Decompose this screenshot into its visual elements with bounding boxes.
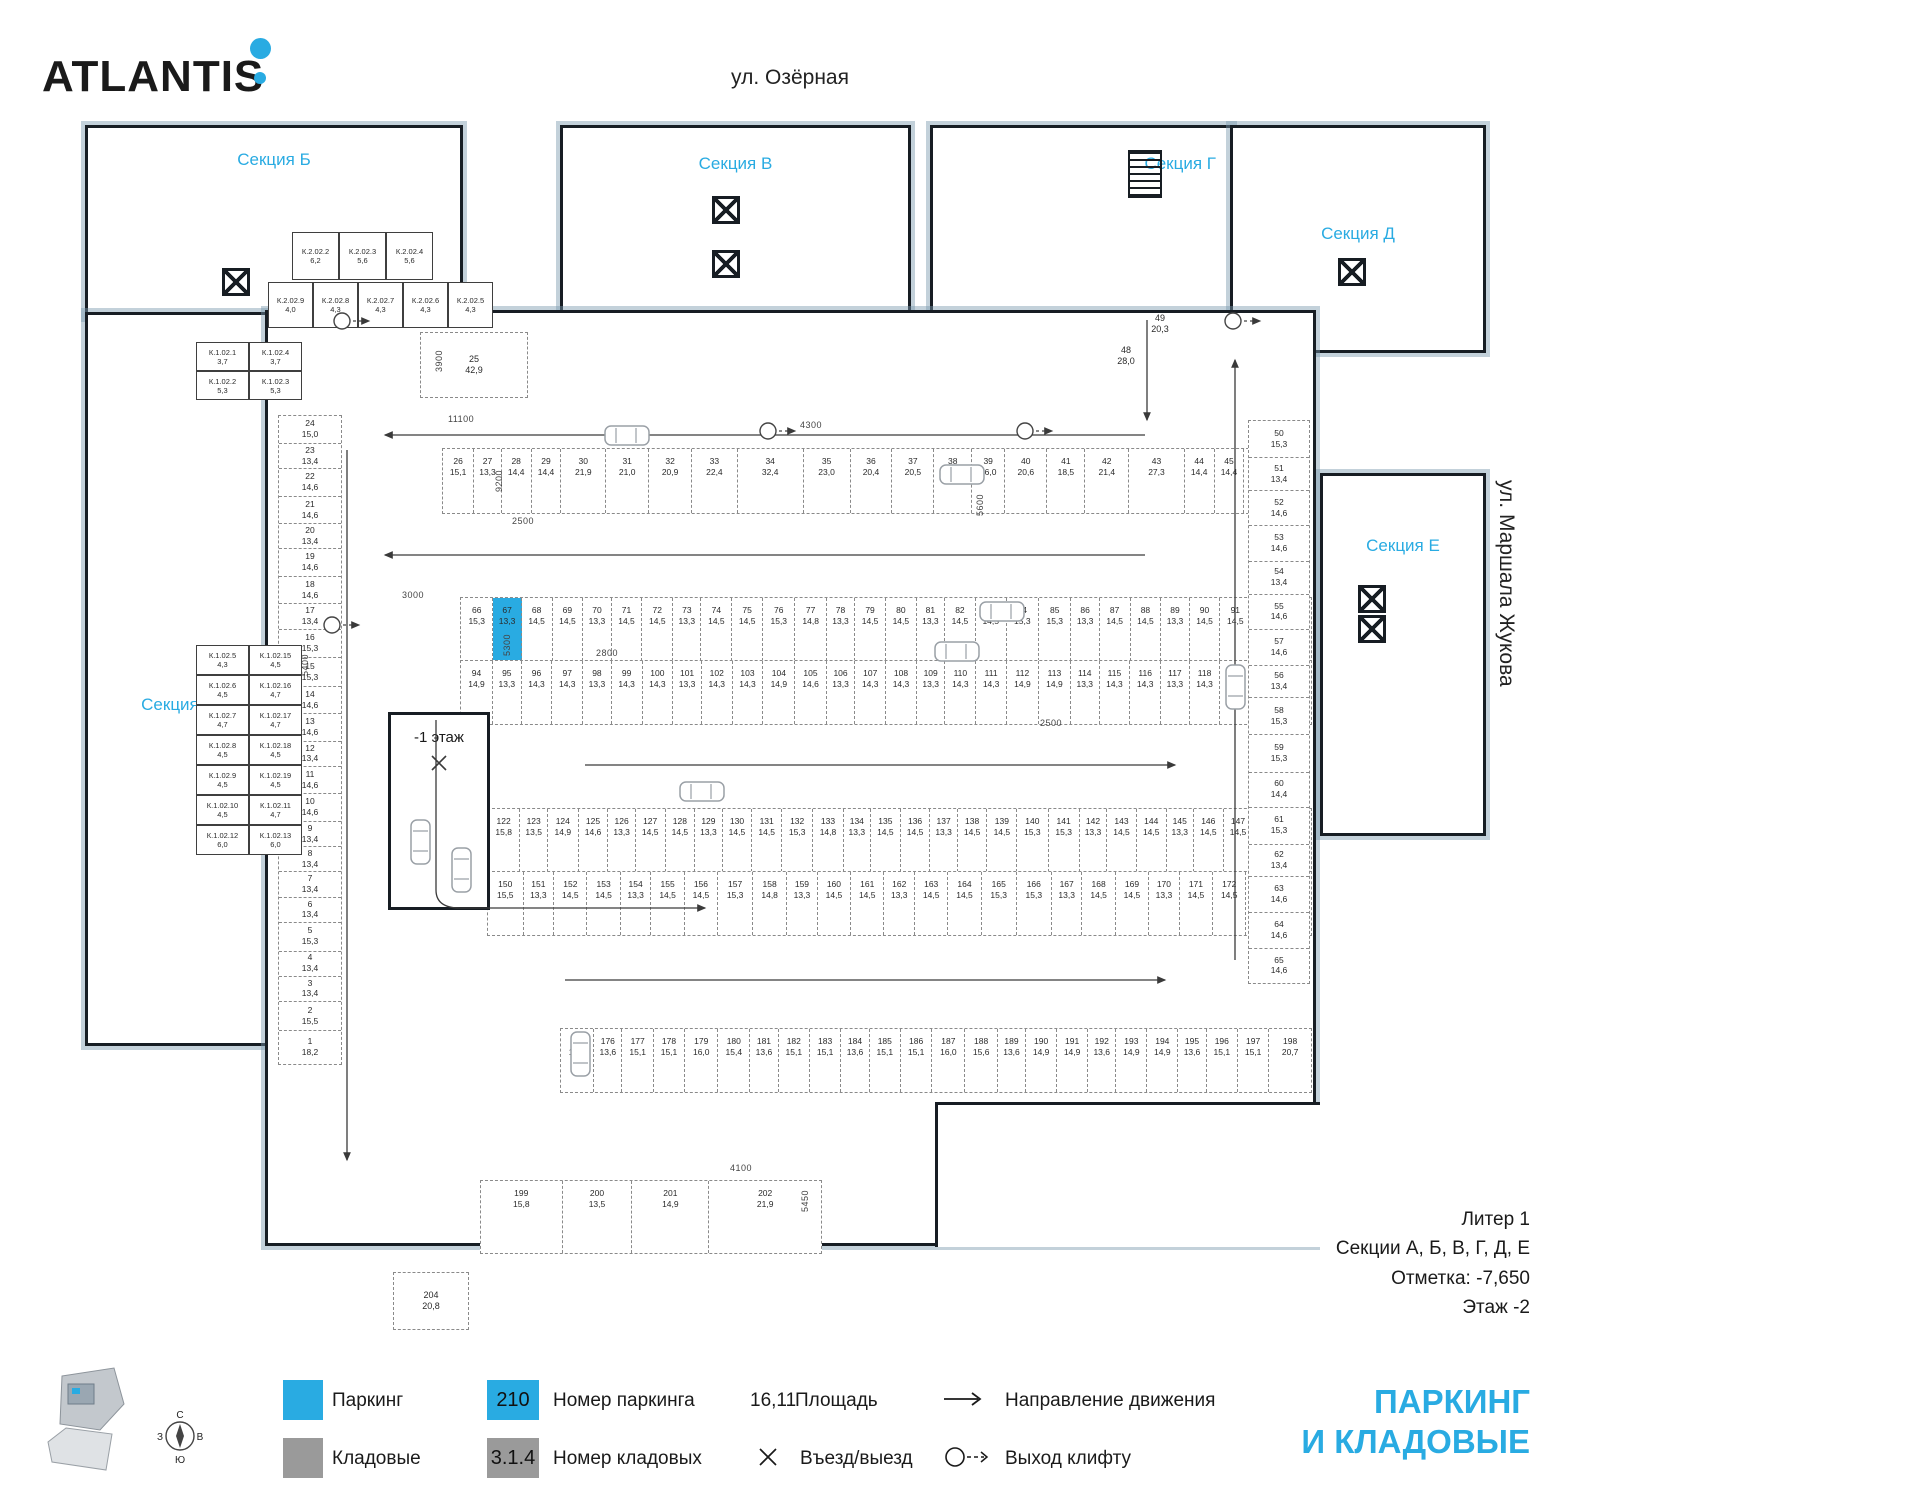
storage-unit-К.1.02.15: К.1.02.154,5 bbox=[249, 645, 302, 675]
parking-spot-195: 19513,6 bbox=[1178, 1029, 1206, 1092]
parking-spot-198: 19820,7 bbox=[1269, 1029, 1311, 1092]
parking-spot-116: 11614,3 bbox=[1130, 661, 1161, 724]
storage-unit-К.1.02.1: К.1.02.13,7 bbox=[196, 342, 249, 371]
parking-row-26-47: 2615,12713,32814,42914,43021,93121,03220… bbox=[442, 448, 1304, 514]
storage-unit-К.1.02.10: К.1.02.104,5 bbox=[196, 795, 249, 825]
parking-spot-125: 12514,6 bbox=[579, 809, 609, 872]
parking-spot-138: 13814,5 bbox=[958, 809, 988, 872]
section-b-label: Секция Б bbox=[88, 150, 460, 170]
parking-spot-129: 12913,3 bbox=[695, 809, 722, 872]
stairs-icon bbox=[1128, 150, 1162, 198]
parking-spot-91: 9114,5 bbox=[1220, 598, 1251, 661]
parking-spot-72: 7214,5 bbox=[642, 598, 673, 661]
parking-spot-97: 9714,3 bbox=[552, 661, 583, 724]
parking-spot-90: 9014,5 bbox=[1190, 598, 1221, 661]
legend-direction-label: Направление движения bbox=[1005, 1390, 1215, 1412]
parking-spot-6: 613,4 bbox=[279, 898, 341, 923]
elevator-icon bbox=[1338, 258, 1366, 286]
legend-parking-swatch bbox=[283, 1380, 323, 1420]
parking-spot-49: 4920,3 bbox=[1130, 313, 1190, 336]
parking-spot-126: 12613,3 bbox=[608, 809, 635, 872]
parking-spot-66: 6615,3 bbox=[461, 598, 493, 661]
storage-group-left-mid: К.1.02.54,3К.1.02.154,5К.1.02.64,5К.1.02… bbox=[196, 645, 302, 855]
parking-spot-80: 8014,5 bbox=[886, 598, 917, 661]
entry-exit-icon bbox=[430, 754, 448, 772]
parking-spot-60: 6014,4 bbox=[1249, 773, 1309, 808]
parking-spot-186: 18615,1 bbox=[901, 1029, 932, 1092]
hall-corner-step bbox=[935, 1102, 1320, 1247]
storage-unit-К.1.02.17: К.1.02.174,7 bbox=[249, 705, 302, 735]
title-floor: Этаж -2 bbox=[1150, 1293, 1530, 1322]
parking-spot-69: 6914,5 bbox=[553, 598, 584, 661]
parking-spot-45: 4514,4 bbox=[1215, 449, 1245, 513]
parking-spot-132: 13215,3 bbox=[782, 809, 813, 872]
parking-spot-89: 8913,3 bbox=[1161, 598, 1189, 661]
parking-spot-146: 14614,5 bbox=[1194, 809, 1224, 872]
storage-unit-К.1.02.2: К.1.02.25,3 bbox=[196, 371, 249, 400]
parking-spot-153: 15314,5 bbox=[587, 872, 620, 935]
parking-spot-113: 11314,9 bbox=[1039, 661, 1071, 724]
parking-spot-79: 7914,5 bbox=[855, 598, 886, 661]
section-g-label: Секция Г bbox=[933, 154, 1230, 174]
parking-spot-32: 3220,9 bbox=[649, 449, 692, 513]
parking-spot-106: 10613,3 bbox=[827, 661, 856, 724]
parking-spot-54: 5413,4 bbox=[1249, 562, 1309, 595]
street-label-ozernaya: ул. Озёрная bbox=[600, 66, 980, 90]
parking-spot-127: 12714,5 bbox=[636, 809, 666, 872]
parking-spot-166: 16615,3 bbox=[1017, 872, 1052, 935]
elevator-icon bbox=[1358, 615, 1386, 643]
parking-spot-140: 14015,3 bbox=[1017, 809, 1048, 872]
parking-column-50-65: 5015,35113,45214,65314,65413,45514,65714… bbox=[1248, 420, 1310, 984]
parking-spot-48: 4828,0 bbox=[1096, 345, 1156, 368]
parking-spot-161: 16114,5 bbox=[851, 872, 884, 935]
parking-row-175-198: 17516,017613,617715,117815,117916,018015… bbox=[560, 1028, 1312, 1093]
legend-area-value: 16,11 bbox=[750, 1390, 796, 1412]
compass-icon: С Ю В З bbox=[157, 1410, 204, 1466]
parking-spot-20: 2013,4 bbox=[279, 524, 341, 549]
parking-spot-82: 8214,5 bbox=[945, 598, 976, 661]
storage-group-left-top: К.1.02.13,7К.1.02.43,7К.1.02.25,3К.1.02.… bbox=[196, 342, 302, 400]
parking-row-199-202: 19915,820013,520114,920221,9 bbox=[480, 1180, 822, 1254]
parking-spot-40: 4020,6 bbox=[1005, 449, 1047, 513]
parking-row-66-93: 6615,36713,36814,56914,57013,37114,57214… bbox=[460, 597, 1312, 663]
parking-spot-95: 9513,3 bbox=[493, 661, 522, 724]
parking-spot-52: 5214,6 bbox=[1249, 491, 1309, 527]
parking-spot-204: 20420,8 bbox=[393, 1272, 469, 1330]
parking-spot-43: 4327,3 bbox=[1129, 449, 1185, 513]
parking-spot-38: 3818,4 bbox=[934, 449, 972, 513]
parking-spot-65: 6514,6 bbox=[1249, 949, 1309, 984]
parking-spot-188: 18815,6 bbox=[965, 1029, 997, 1092]
parking-spot-176: 17613,6 bbox=[594, 1029, 622, 1092]
parking-spot-56: 5613,4 bbox=[1249, 666, 1309, 699]
parking-spot-136: 13614,5 bbox=[901, 809, 931, 872]
parking-spot-157: 15715,3 bbox=[718, 872, 753, 935]
parking-spot-100: 10014,3 bbox=[643, 661, 674, 724]
parking-spot-159: 15913,3 bbox=[787, 872, 818, 935]
parking-spot-73: 7313,3 bbox=[673, 598, 701, 661]
parking-spot-169: 16914,5 bbox=[1116, 872, 1149, 935]
elevator-icon bbox=[1358, 585, 1386, 613]
parking-spot-7: 713,4 bbox=[279, 872, 341, 897]
parking-spot-101: 10113,3 bbox=[673, 661, 702, 724]
parking-spot-152: 15214,5 bbox=[554, 872, 587, 935]
parking-spot-158: 15814,8 bbox=[753, 872, 787, 935]
parking-spot-81: 8113,3 bbox=[917, 598, 945, 661]
parking-spot-22: 2214,6 bbox=[279, 469, 341, 496]
parking-spot-163: 16314,5 bbox=[915, 872, 948, 935]
parking-spot-187: 18716,0 bbox=[932, 1029, 965, 1092]
parking-spot-83: 8314,5 bbox=[976, 598, 1007, 661]
parking-spot-197: 19715,1 bbox=[1238, 1029, 1269, 1092]
parking-spot-88: 8814,5 bbox=[1131, 598, 1162, 661]
storage-unit-К.1.02.3: К.1.02.35,3 bbox=[249, 371, 302, 400]
parking-spot-164: 16414,5 bbox=[948, 872, 981, 935]
dimension-label: 11100 bbox=[448, 414, 474, 424]
parking-spot-131: 13114,5 bbox=[752, 809, 782, 872]
parking-spot-182: 18215,1 bbox=[779, 1029, 810, 1092]
parking-spot-178: 17815,1 bbox=[654, 1029, 685, 1092]
elevator-icon bbox=[712, 196, 740, 224]
parking-spot-110: 11014,3 bbox=[945, 661, 976, 724]
parking-spot-63: 6314,6 bbox=[1249, 877, 1309, 913]
atlantis-logo: ATLANTIS bbox=[42, 52, 264, 102]
parking-row-122-149: 12215,812313,512414,912514,612613,312714… bbox=[487, 808, 1312, 874]
parking-spot-85: 8515,3 bbox=[1039, 598, 1071, 661]
dimension-label: 5600 bbox=[975, 494, 985, 516]
ramp-label: -1 этаж bbox=[414, 729, 464, 746]
parking-spot-98: 9813,3 bbox=[583, 661, 612, 724]
compass-north: С bbox=[176, 1410, 183, 1421]
storage-unit-К.1.02.11: К.1.02.114,7 bbox=[249, 795, 302, 825]
parking-spot-192: 19213,6 bbox=[1088, 1029, 1116, 1092]
parking-spot-165: 16515,3 bbox=[982, 872, 1017, 935]
parking-spot-37: 3720,5 bbox=[892, 449, 934, 513]
parking-spot-29: 2914,4 bbox=[532, 449, 562, 513]
parking-spot-1: 118,2 bbox=[279, 1031, 341, 1064]
parking-spot-41: 4118,5 bbox=[1047, 449, 1085, 513]
dimension-label: 4300 bbox=[800, 420, 822, 430]
parking-spot-87: 8714,5 bbox=[1100, 598, 1131, 661]
parking-spot-4: 413,4 bbox=[279, 952, 341, 977]
parking-spot-78: 7813,3 bbox=[827, 598, 855, 661]
storage-unit-К.1.02.9: К.1.02.94,5 bbox=[196, 765, 249, 795]
storage-unit-К.2.02.6: К.2.02.64,3 bbox=[403, 282, 448, 328]
entry-exit-icon bbox=[757, 1446, 779, 1468]
parking-spot-118: 11814,3 bbox=[1190, 661, 1221, 724]
parking-row-94-121: 9414,99513,39614,39714,39813,39914,31001… bbox=[460, 660, 1312, 725]
parking-spot-103: 10314,3 bbox=[733, 661, 764, 724]
storage-unit-К.2.02.2: К.2.02.26,2 bbox=[292, 232, 339, 280]
storage-unit-К.2.02.5: К.2.02.54,3 bbox=[448, 282, 493, 328]
legend-lift-label: Выход клифту bbox=[1005, 1448, 1131, 1470]
parking-spot-123: 12313,5 bbox=[520, 809, 548, 872]
parking-spot-133: 13314,8 bbox=[813, 809, 843, 872]
parking-spot-26: 2615,1 bbox=[443, 449, 474, 513]
parking-spot-193: 19314,9 bbox=[1116, 1029, 1147, 1092]
storage-unit-К.2.02.3: К.2.02.35,6 bbox=[339, 232, 386, 280]
parking-spot-102: 10214,3 bbox=[702, 661, 733, 724]
dimension-label: 3000 bbox=[402, 590, 424, 600]
parking-spot-74: 7414,5 bbox=[701, 598, 732, 661]
section-d-label: Секция Д bbox=[1233, 224, 1483, 244]
elevator-icon bbox=[712, 250, 740, 278]
parking-spot-34: 3432,4 bbox=[738, 449, 804, 513]
parking-spot-122: 12215,8 bbox=[488, 809, 520, 872]
legend-parking-number-box: 210 bbox=[487, 1380, 539, 1420]
parking-spot-128: 12814,5 bbox=[666, 809, 696, 872]
parking-spot-179: 17916,0 bbox=[685, 1029, 718, 1092]
parking-spot-181: 18113,6 bbox=[750, 1029, 778, 1092]
legend-storage-swatch bbox=[283, 1438, 323, 1478]
parking-spot-64: 6414,6 bbox=[1249, 913, 1309, 949]
legend-area-label: Площадь bbox=[795, 1390, 878, 1412]
dimension-label: 4100 bbox=[730, 1163, 752, 1173]
dimension-label: 2500 bbox=[1040, 718, 1062, 728]
parking-spot-111: 11114,3 bbox=[976, 661, 1007, 724]
parking-spot-180: 18015,4 bbox=[718, 1029, 750, 1092]
logo-dot-icon bbox=[254, 72, 266, 84]
parking-spot-200: 20013,5 bbox=[563, 1181, 633, 1253]
parking-spot-23: 2313,4 bbox=[279, 444, 341, 469]
parking-spot-154: 15413,3 bbox=[621, 872, 652, 935]
parking-spot-135: 13514,5 bbox=[871, 809, 901, 872]
site-minimap: С Ю В З bbox=[22, 1358, 217, 1488]
dimension-label: 2800 bbox=[596, 648, 618, 658]
parking-spot-55: 5514,6 bbox=[1249, 595, 1309, 631]
parking-spot-196: 19615,1 bbox=[1207, 1029, 1238, 1092]
parking-spot-2: 215,5 bbox=[279, 1002, 341, 1031]
parking-spot-124: 12414,9 bbox=[548, 809, 579, 872]
parking-spot-86: 8613,3 bbox=[1071, 598, 1099, 661]
parking-spot-50: 5015,3 bbox=[1249, 421, 1309, 458]
parking-spot-144: 14414,5 bbox=[1137, 809, 1167, 872]
compass-south: Ю bbox=[175, 1455, 185, 1466]
parking-spot-160: 16014,5 bbox=[818, 872, 851, 935]
parking-spot-104: 10414,9 bbox=[763, 661, 795, 724]
section-v-label: Секция В bbox=[563, 154, 908, 174]
block-section-g: Секция Г bbox=[930, 125, 1233, 338]
parking-spot-117: 11713,3 bbox=[1161, 661, 1190, 724]
parking-spot-189: 18913,6 bbox=[998, 1029, 1026, 1092]
legend-storage-number-label: Номер кладовых bbox=[553, 1448, 702, 1470]
parking-spot-18: 1814,6 bbox=[279, 577, 341, 604]
elevator-icon bbox=[222, 268, 250, 296]
dimension-label: 9200 bbox=[494, 470, 504, 492]
legend-entry-label: Въезд/выезд bbox=[800, 1448, 913, 1470]
parking-spot-105: 10514,6 bbox=[795, 661, 826, 724]
parking-spot-36: 3620,4 bbox=[851, 449, 893, 513]
parking-spot-172: 17214,5 bbox=[1213, 872, 1246, 935]
compass-west: З bbox=[157, 1432, 163, 1443]
parking-spot-31: 3121,0 bbox=[606, 449, 649, 513]
parking-spot-68: 6814,5 bbox=[522, 598, 553, 661]
parking-plan-page: ATLANTIS ул. Озёрная ул. Маршала Жукова … bbox=[0, 0, 1920, 1495]
parking-spot-35: 3523,0 bbox=[804, 449, 851, 513]
parking-row-150-174: 15015,515113,315214,515314,515413,315514… bbox=[487, 871, 1312, 936]
parking-spot-84: 8415,3 bbox=[1007, 598, 1039, 661]
parking-spot-194: 19414,9 bbox=[1147, 1029, 1178, 1092]
storage-group-top1: К.2.02.26,2К.2.02.35,6К.2.02.45,6 bbox=[292, 232, 433, 280]
parking-spot-156: 15614,5 bbox=[685, 872, 718, 935]
title-mark: Отметка: -7,650 bbox=[1150, 1264, 1530, 1293]
direction-arrow-icon bbox=[942, 1390, 986, 1408]
dimension-label: 5450 bbox=[800, 1190, 810, 1212]
parking-spot-151: 15113,3 bbox=[524, 872, 555, 935]
parking-spot-150: 15015,5 bbox=[488, 872, 524, 935]
parking-spot-145: 14513,3 bbox=[1167, 809, 1194, 872]
parking-spot-167: 16713,3 bbox=[1052, 872, 1083, 935]
storage-unit-К.2.02.8: К.2.02.84,3 bbox=[313, 282, 358, 328]
parking-spot-108: 10814,3 bbox=[886, 661, 917, 724]
section-e-label: Секция Е bbox=[1323, 536, 1483, 556]
parking-spot-141: 14115,3 bbox=[1049, 809, 1080, 872]
parking-spot-17: 1713,4 bbox=[279, 604, 341, 629]
parking-spot-58: 5815,3 bbox=[1249, 698, 1309, 735]
parking-spot-112: 11214,9 bbox=[1007, 661, 1039, 724]
parking-spot-115: 11514,3 bbox=[1100, 661, 1131, 724]
parking-spot-44: 4414,4 bbox=[1185, 449, 1215, 513]
dimension-label: 5300 bbox=[502, 634, 512, 656]
parking-spot-162: 16213,3 bbox=[884, 872, 915, 935]
parking-spot-3: 313,4 bbox=[279, 977, 341, 1002]
parking-spot-62: 6213,4 bbox=[1249, 845, 1309, 878]
parking-spot-184: 18413,6 bbox=[841, 1029, 869, 1092]
parking-spot-5: 515,3 bbox=[279, 923, 341, 952]
parking-spot-191: 19114,9 bbox=[1057, 1029, 1088, 1092]
parking-spot-171: 17114,5 bbox=[1180, 872, 1213, 935]
parking-spot-33: 3322,4 bbox=[692, 449, 738, 513]
parking-spot-168: 16814,5 bbox=[1082, 872, 1115, 935]
parking-spot-155: 15514,5 bbox=[651, 872, 684, 935]
storage-unit-К.1.02.16: К.1.02.164,7 bbox=[249, 675, 302, 705]
storage-unit-К.1.02.8: К.1.02.84,5 bbox=[196, 735, 249, 765]
parking-spot-114: 11413,3 bbox=[1071, 661, 1100, 724]
parking-spot-183: 18315,1 bbox=[810, 1029, 841, 1092]
storage-unit-К.2.02.9: К.2.02.94,0 bbox=[268, 282, 313, 328]
parking-spot-77: 7714,8 bbox=[795, 598, 826, 661]
parking-spot-199: 19915,8 bbox=[481, 1181, 563, 1253]
storage-unit-К.1.02.13: К.1.02.136,0 bbox=[249, 825, 302, 855]
storage-unit-К.1.02.18: К.1.02.184,5 bbox=[249, 735, 302, 765]
legend-storage-label: Кладовые bbox=[332, 1448, 421, 1470]
block-section-e: Секция Е bbox=[1320, 473, 1486, 836]
dimension-label: 5400 bbox=[300, 654, 310, 676]
legend-parking-label: Паркинг bbox=[332, 1390, 403, 1412]
parking-spot-24: 2415,0 bbox=[279, 416, 341, 444]
storage-unit-К.1.02.6: К.1.02.64,5 bbox=[196, 675, 249, 705]
parking-spot-175: 17516,0 bbox=[561, 1029, 594, 1092]
storage-unit-К.2.02.7: К.2.02.74,3 bbox=[358, 282, 403, 328]
parking-spot-76: 7615,3 bbox=[763, 598, 795, 661]
storage-unit-К.1.02.12: К.1.02.126,0 bbox=[196, 825, 249, 855]
parking-spot-28: 2814,4 bbox=[502, 449, 532, 513]
storage-unit-К.1.02.19: К.1.02.194,5 bbox=[249, 765, 302, 795]
lift-exit-icon bbox=[944, 1444, 994, 1470]
storage-unit-К.1.02.4: К.1.02.43,7 bbox=[249, 342, 302, 371]
parking-spot-109: 10913,3 bbox=[917, 661, 946, 724]
parking-spot-190: 19014,9 bbox=[1026, 1029, 1057, 1092]
storage-unit-К.1.02.7: К.1.02.74,7 bbox=[196, 705, 249, 735]
parking-spot-177: 17715,1 bbox=[622, 1029, 653, 1092]
storage-unit-К.2.02.4: К.2.02.45,6 bbox=[386, 232, 433, 280]
parking-spot-30: 3021,9 bbox=[561, 449, 606, 513]
parking-spot-75: 7514,5 bbox=[732, 598, 763, 661]
dimension-label: 3900 bbox=[434, 350, 444, 372]
parking-spot-61: 6115,3 bbox=[1249, 808, 1309, 845]
parking-spot-170: 17013,3 bbox=[1149, 872, 1180, 935]
ramp-box: -1 этаж bbox=[388, 712, 490, 910]
compass-east: В bbox=[197, 1432, 204, 1443]
legend-storage-number-box: 3.1.4 bbox=[487, 1438, 539, 1478]
parking-spot-143: 14314,5 bbox=[1107, 809, 1137, 872]
legend-parking-number-label: Номер паркинга bbox=[553, 1390, 695, 1412]
parking-spot-21: 2114,6 bbox=[279, 497, 341, 524]
parking-spot-53: 5314,6 bbox=[1249, 526, 1309, 562]
parking-spot-59: 5915,3 bbox=[1249, 735, 1309, 772]
parking-spot-134: 13413,3 bbox=[844, 809, 871, 872]
parking-spot-201: 20114,9 bbox=[632, 1181, 709, 1253]
parking-spot-142: 14213,3 bbox=[1080, 809, 1107, 872]
parking-spot-57: 5714,6 bbox=[1249, 630, 1309, 666]
parking-spot-185: 18515,1 bbox=[870, 1029, 901, 1092]
storage-unit-К.1.02.5: К.1.02.54,3 bbox=[196, 645, 249, 675]
storage-group-top2: К.2.02.94,0К.2.02.84,3К.2.02.74,3К.2.02.… bbox=[268, 282, 493, 328]
parking-spot-42: 4221,4 bbox=[1085, 449, 1129, 513]
logo-dot-icon bbox=[250, 38, 271, 59]
parking-spot-137: 13713,3 bbox=[930, 809, 957, 872]
parking-spot-107: 10714,3 bbox=[855, 661, 886, 724]
dimension-label: 2500 bbox=[512, 516, 534, 526]
street-label-zhukova: ул. Маршала Жукова bbox=[1494, 480, 1518, 687]
parking-spot-96: 9614,3 bbox=[522, 661, 553, 724]
parking-spot-19: 1914,6 bbox=[279, 549, 341, 576]
parking-spot-139: 13914,5 bbox=[987, 809, 1017, 872]
parking-spot-130: 13014,5 bbox=[723, 809, 753, 872]
parking-spot-119: 11914,3 bbox=[1220, 661, 1251, 724]
parking-spot-51: 5113,4 bbox=[1249, 458, 1309, 491]
parking-spot-99: 9914,3 bbox=[612, 661, 643, 724]
